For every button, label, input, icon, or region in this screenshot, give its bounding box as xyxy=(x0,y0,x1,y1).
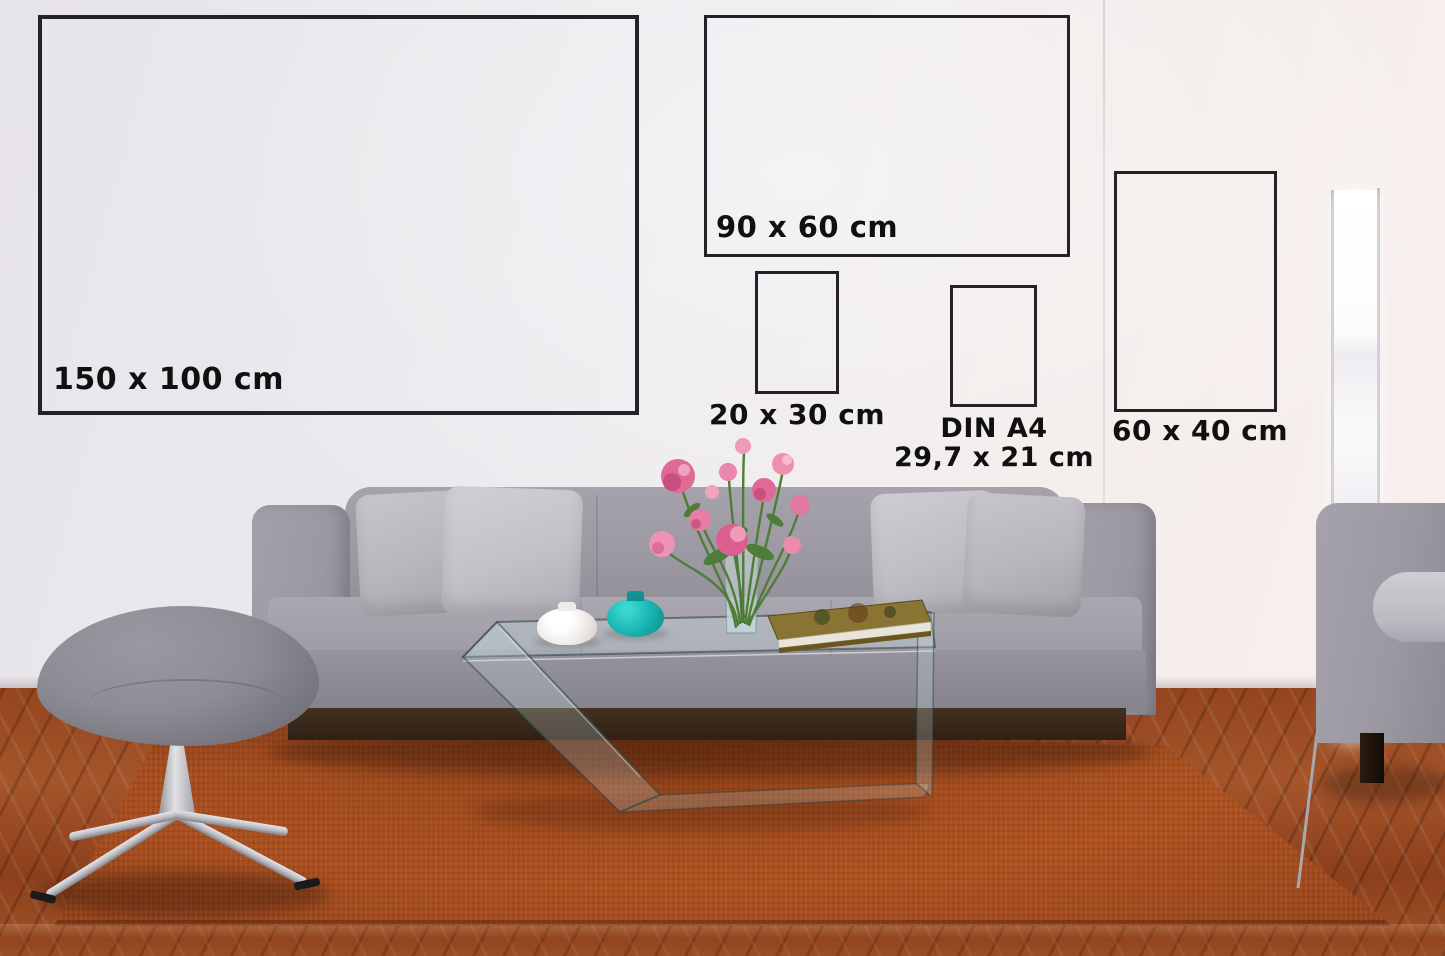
size-label-60x40: 60 x 40 cm xyxy=(1105,414,1295,447)
size-label-90x60: 90 x 60 cm xyxy=(716,210,898,244)
size-frame-din-a4 xyxy=(950,285,1037,407)
size-label-150x100: 150 x 100 cm xyxy=(53,362,284,397)
size-label-din-a4-line2: 29,7 x 21 cm xyxy=(889,443,1099,472)
flower-bouquet xyxy=(640,428,845,643)
side-sofa-leg xyxy=(1360,733,1384,783)
size-label-din-a4-line1: DIN A4 xyxy=(889,414,1099,443)
size-label-20x30: 20 x 30 cm xyxy=(702,398,892,431)
living-room-size-guide: 150 x 100 cm 90 x 60 cm 20 x 30 cm DIN A… xyxy=(0,0,1445,956)
size-frame-150x100 xyxy=(38,15,639,415)
floor-reflection xyxy=(0,924,1445,956)
stool-shadow xyxy=(40,872,330,916)
sofa-backrest-seam xyxy=(596,495,598,610)
size-frame-20x30 xyxy=(755,271,839,394)
size-label-din-a4: DIN A4 29,7 x 21 cm xyxy=(889,414,1099,472)
side-sofa-bolster-pillow xyxy=(1373,572,1445,642)
pillow xyxy=(962,492,1086,618)
size-frame-60x40 xyxy=(1114,171,1277,412)
white-vase xyxy=(537,608,597,645)
